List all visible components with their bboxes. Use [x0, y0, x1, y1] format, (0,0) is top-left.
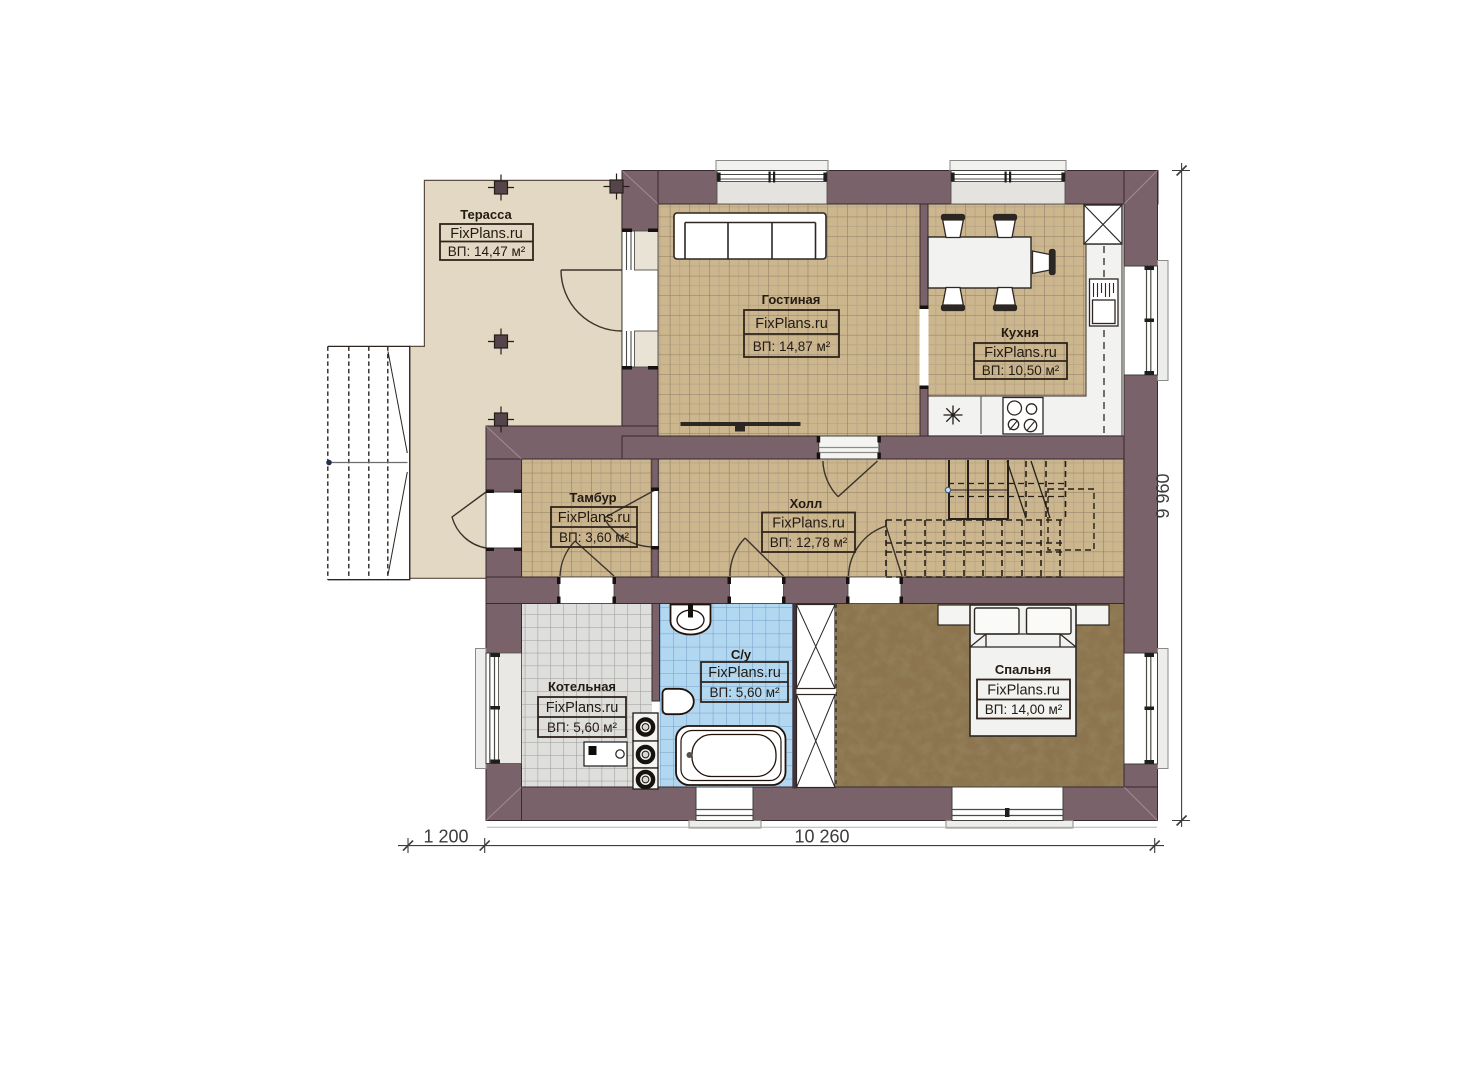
svg-text:ВП: 5,60 м²: ВП: 5,60 м²: [547, 720, 618, 735]
svg-text:ВП: 3,60 м²: ВП: 3,60 м²: [559, 530, 630, 545]
svg-text:Тамбур: Тамбур: [569, 490, 616, 505]
svg-text:Гостиная: Гостиная: [762, 292, 821, 307]
svg-text:ВП: 14,00 м²: ВП: 14,00 м²: [985, 702, 1063, 717]
svg-text:FixPlans.ru: FixPlans.ru: [708, 665, 781, 681]
svg-text:9 960: 9 960: [1153, 473, 1173, 518]
svg-text:FixPlans.ru: FixPlans.ru: [558, 510, 631, 526]
svg-text:ВП: 12,78 м²: ВП: 12,78 м²: [770, 535, 848, 550]
svg-text:ВП: 10,50 м²: ВП: 10,50 м²: [982, 363, 1060, 378]
svg-text:FixPlans.ru: FixPlans.ru: [772, 516, 845, 532]
svg-text:FixPlans.ru: FixPlans.ru: [450, 226, 523, 242]
svg-text:ВП: 5,60 м²: ВП: 5,60 м²: [709, 685, 780, 700]
svg-text:FixPlans.ru: FixPlans.ru: [984, 345, 1057, 361]
svg-text:1 200: 1 200: [423, 827, 468, 847]
svg-text:Спальня: Спальня: [995, 662, 1051, 677]
svg-text:FixPlans.ru: FixPlans.ru: [987, 683, 1060, 699]
svg-text:ВП: 14,47 м²: ВП: 14,47 м²: [448, 244, 526, 259]
svg-text:Холл: Холл: [790, 496, 823, 511]
svg-text:С/у: С/у: [731, 647, 752, 662]
svg-text:10 260: 10 260: [794, 827, 849, 847]
svg-text:FixPlans.ru: FixPlans.ru: [755, 316, 828, 332]
svg-text:ВП: 14,87 м²: ВП: 14,87 м²: [753, 339, 831, 354]
svg-text:Терасса: Терасса: [460, 207, 512, 222]
svg-text:Котельная: Котельная: [548, 679, 616, 694]
svg-text:Кухня: Кухня: [1001, 325, 1039, 340]
svg-text:FixPlans.ru: FixPlans.ru: [546, 700, 619, 716]
